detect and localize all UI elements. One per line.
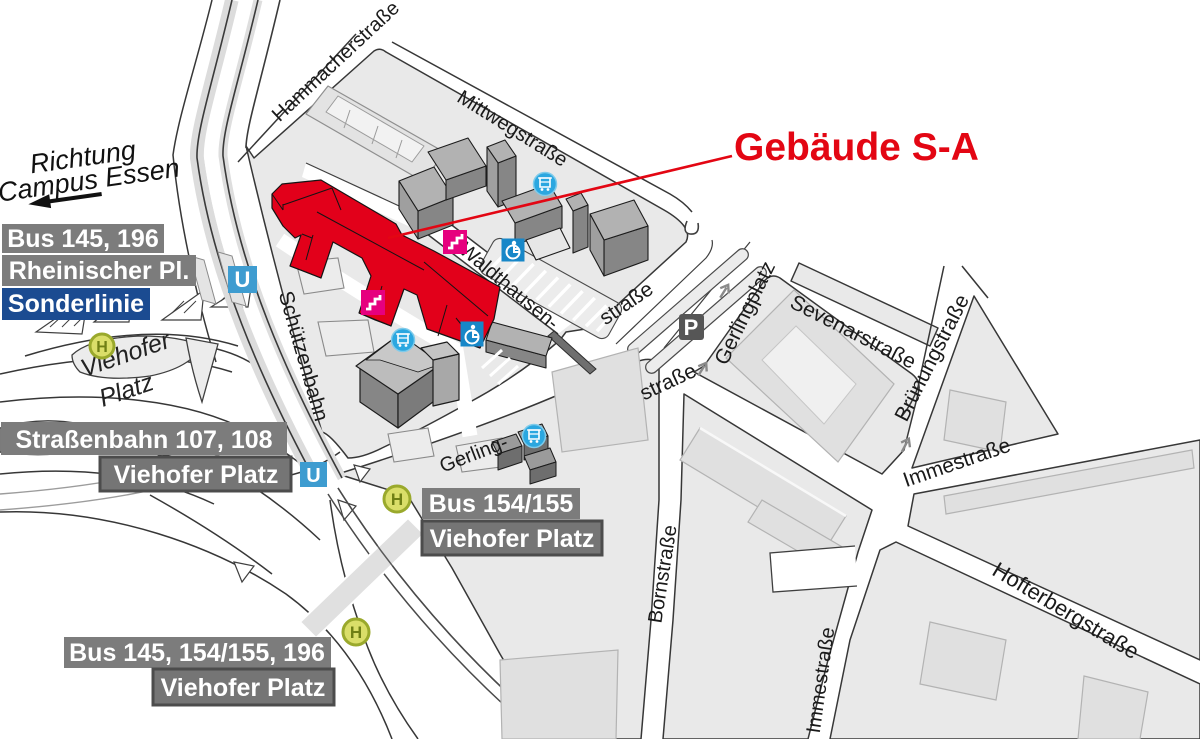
svg-text:Rheinischer Pl.: Rheinischer Pl. [9,257,190,285]
svg-text:Viehofer Platz: Viehofer Platz [114,461,279,489]
svg-text:H: H [391,490,403,509]
svg-text:H: H [350,623,362,642]
svg-text:Bus 154/155: Bus 154/155 [429,490,574,518]
svg-text:Viehofer Platz: Viehofer Platz [430,525,595,553]
svg-text:P: P [684,315,699,340]
svg-text:Gebäude S-A: Gebäude S-A [734,126,979,169]
svg-text:Bus 145, 154/155, 196: Bus 145, 154/155, 196 [69,639,325,667]
svg-text:U: U [235,267,251,292]
svg-text:Viehofer Platz: Viehofer Platz [161,674,326,702]
svg-text:U: U [306,465,320,487]
svg-text:H: H [96,339,108,356]
svg-text:Bus 145, 196: Bus 145, 196 [7,225,159,253]
svg-text:Straßenbahn 107, 108: Straßenbahn 107, 108 [15,426,272,454]
svg-text:Sonderlinie: Sonderlinie [8,290,144,318]
